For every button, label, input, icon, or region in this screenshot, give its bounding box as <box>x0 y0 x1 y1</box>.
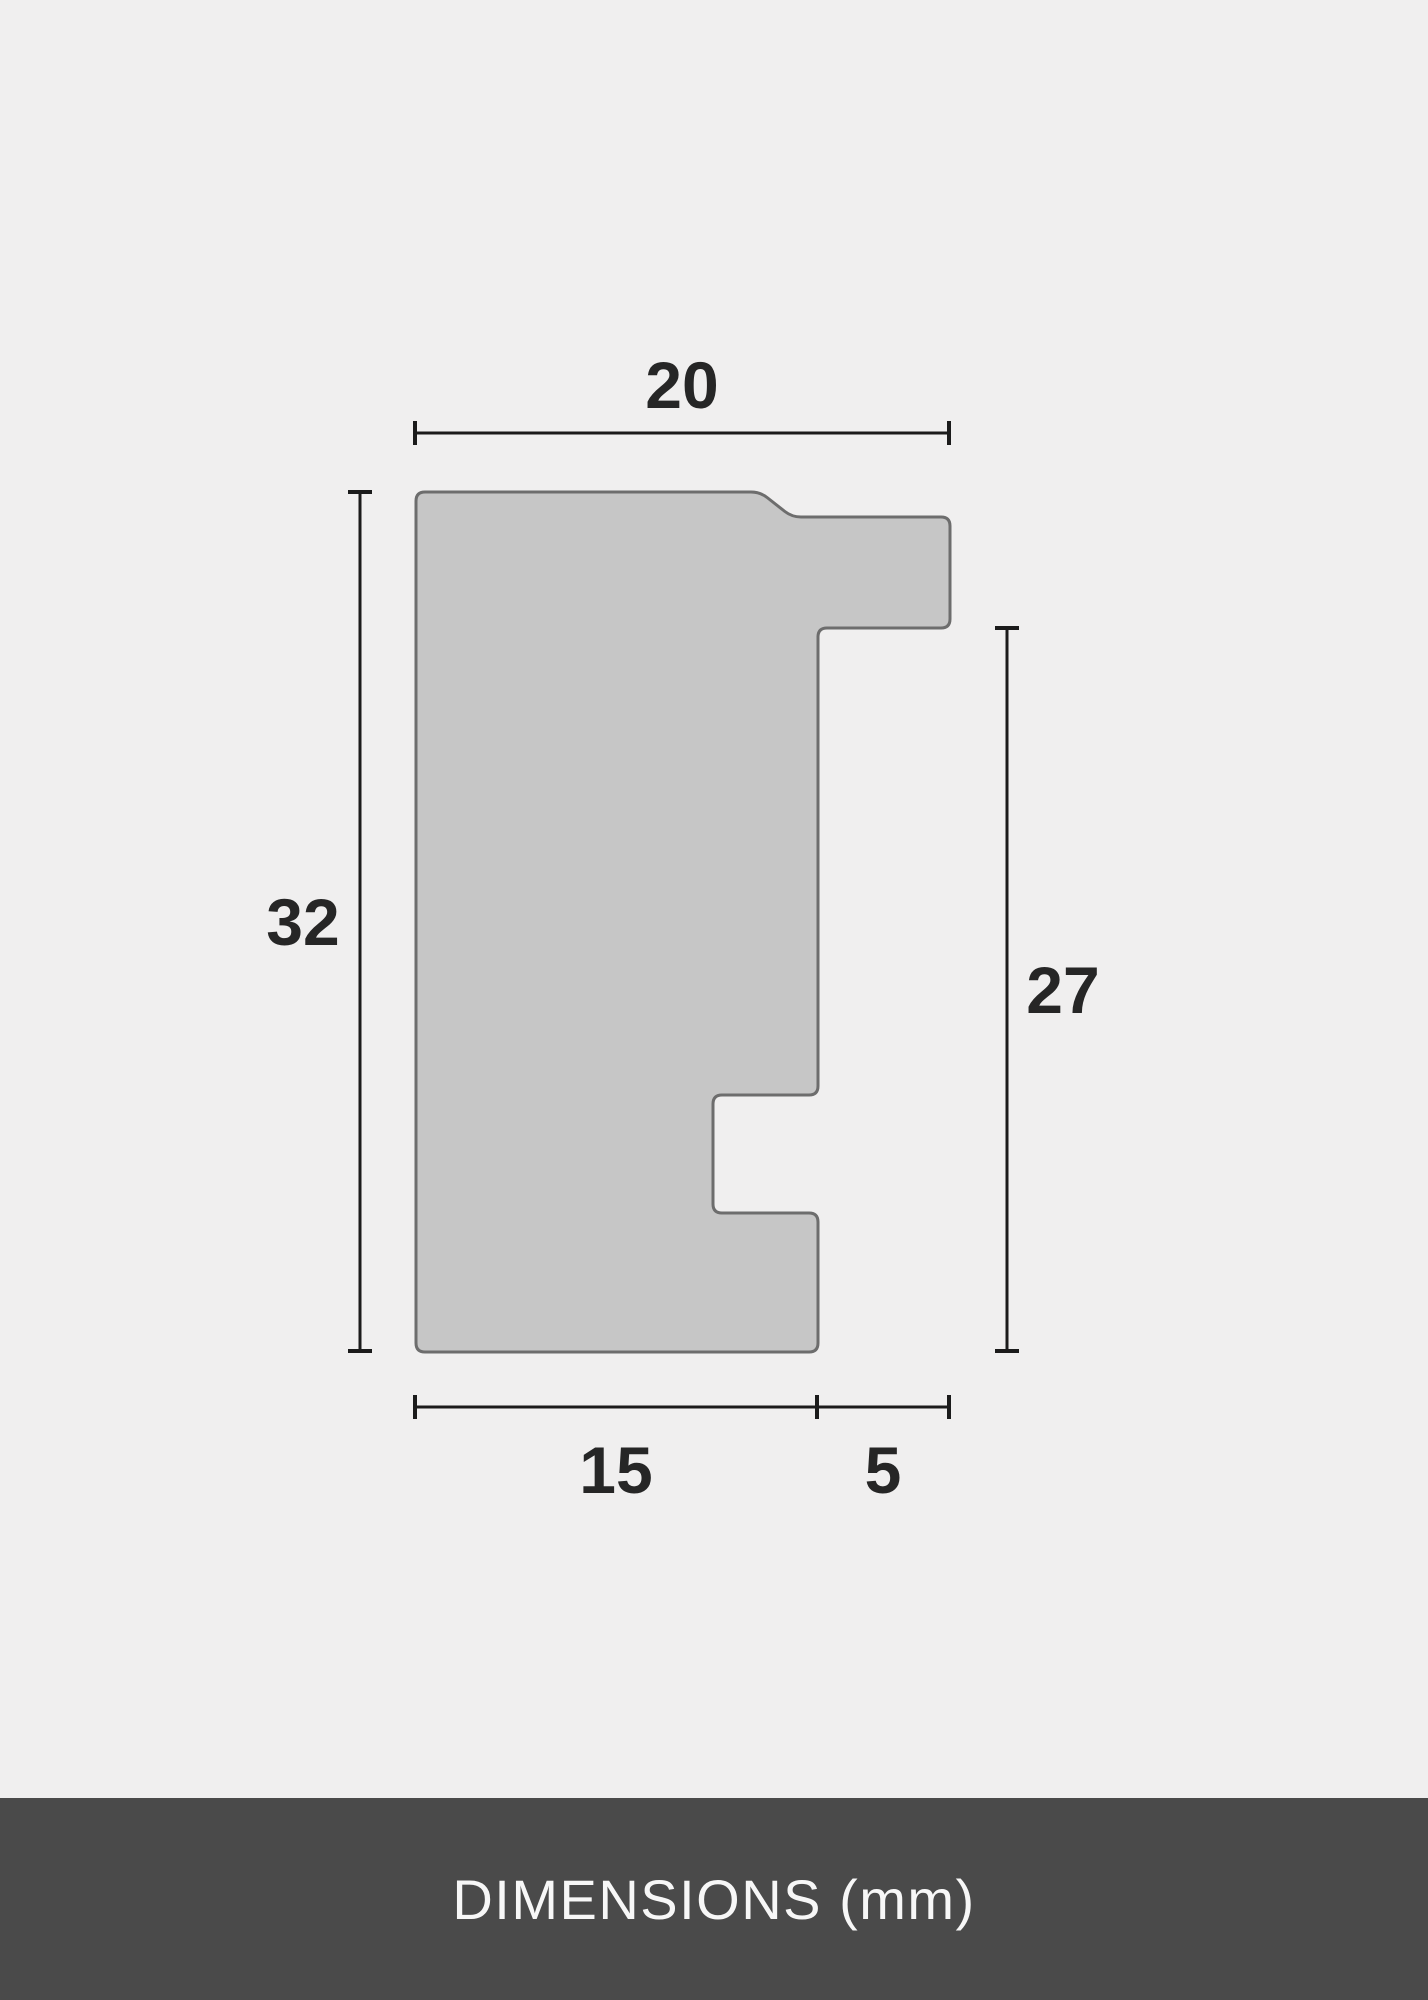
footer-title: DIMENSIONS (mm) <box>452 1867 975 1932</box>
profile-diagram-canvas <box>0 0 1428 2000</box>
moulding-profile-shape <box>416 492 950 1352</box>
dim-label-top: 20 <box>645 352 718 418</box>
dim-label-right: 27 <box>1026 957 1099 1023</box>
dim-label-left: 32 <box>266 889 339 955</box>
page: 20 32 27 15 5 DIMENSIONS (mm) <box>0 0 1428 2000</box>
dim-label-bottom-left: 15 <box>579 1437 652 1503</box>
footer-bar: DIMENSIONS (mm) <box>0 1798 1428 2000</box>
dim-label-bottom-right: 5 <box>865 1437 902 1503</box>
